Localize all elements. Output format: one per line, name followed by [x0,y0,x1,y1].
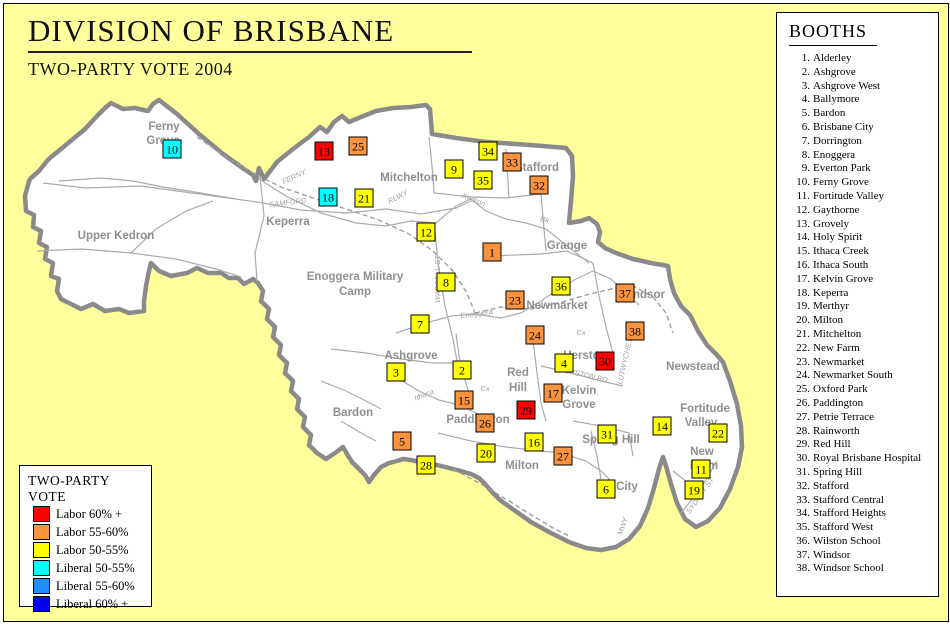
suburb-label: Grove [562,399,595,411]
legend-entry: Liberal 60% + [33,595,151,613]
suburb-label: Camp [339,286,371,298]
suburb-label: Ashgrove [384,350,437,362]
booth-number: 14. [789,231,810,245]
booth-list-item: 23.Newmarket [789,356,938,370]
booth-number: 6. [789,121,810,135]
booth-number: 28. [789,425,810,439]
legend-label: Labor 60% + [56,507,122,522]
booth-list-item: 27.Petrie Terrace [789,411,938,425]
booth-number: 3. [789,80,810,94]
page-subtitle: TWO-PARTY VOTE 2004 [28,59,472,80]
booth-name: Stafford Central [813,494,884,506]
booth-name: Red Hill [813,438,851,450]
booth-list-item: 25.Oxford Park [789,383,938,397]
booth-list-item: 31.Spring Hill [789,466,938,480]
suburb-label: Newmarket [526,300,588,312]
booth-name: Grovely [813,218,849,230]
booth-list-item: 30.Royal Brisbane Hospital [789,452,938,466]
booth-number: 35. [789,521,810,535]
booth-number: 18. [789,287,810,301]
booth-number: 27. [789,411,810,425]
booth-number: 32. [789,480,810,494]
booth-number: 29. [789,438,810,452]
booth-name: Ferny Grove [813,176,869,188]
suburb-label: Keperra [266,216,310,228]
booth-marker-number-11[interactable]: 11 [695,463,707,477]
booth-name: Newmarket South [813,369,893,381]
suburb-label: Upper Kedron [78,230,155,242]
booth-number: 24. [789,369,810,383]
booth-marker-number-28[interactable]: 28 [420,459,432,473]
booth-name: Everton Park [813,162,871,174]
booth-name: Enoggera [813,149,855,161]
booth-list-item: 15.Ithaca Creek [789,245,938,259]
booth-number: 13. [789,218,810,232]
booth-marker-number-13[interactable]: 13 [318,145,330,159]
legend-label: Liberal 55-60% [56,579,135,594]
booth-list-item: 36.Wilston School [789,535,938,549]
booth-list-item: 21.Mitchelton [789,328,938,342]
suburb-label: Fortitude [680,403,730,415]
booths-title: BOOTHS [789,21,938,42]
booth-list-item: 22.New Farm [789,342,938,356]
booth-name: Stafford West [813,521,873,533]
booth-list-item: 9.Everton Park [789,162,938,176]
booth-marker-number-19[interactable]: 19 [688,484,700,498]
booth-number: 20. [789,314,810,328]
booth-marker-number-23[interactable]: 23 [509,294,521,308]
booth-number: 23. [789,356,810,370]
booth-marker-number-30[interactable]: 30 [599,355,611,369]
legend-rows: Labor 60% +Labor 55-60%Labor 50-55%Liber… [28,505,151,613]
booth-list-item: 29.Red Hill [789,438,938,452]
legend-title: TWO-PARTY VOTE [28,473,151,505]
booth-list-item: 8.Enoggera [789,149,938,163]
booth-number: 38. [789,562,810,576]
booth-list-item: 20.Milton [789,314,938,328]
booth-list-item: 11.Fortitude Valley [789,190,938,204]
booth-marker-number-12[interactable]: 12 [420,226,432,240]
booth-marker-number-29[interactable]: 29 [520,404,532,418]
legend-entry: Liberal 50-55% [33,559,151,577]
booth-list-item: 37.Windsor [789,549,938,563]
booth-number: 30. [789,452,810,466]
booth-list-item: 5.Bardon [789,107,938,121]
title-underline [28,51,472,53]
booth-number: 37. [789,549,810,563]
booth-name: Gaythorne [813,204,859,216]
booth-name: Petrie Terrace [813,411,874,423]
booth-name: Oxford Park [813,383,868,395]
road-label: Cx [480,384,489,393]
booth-number: 8. [789,149,810,163]
booth-list-item: 3.Ashgrove West [789,80,938,94]
booths-panel: BOOTHS 1.Alderley2.Ashgrove3.Ashgrove We… [776,12,939,597]
booth-marker-number-16[interactable]: 16 [528,436,540,450]
booth-name: New Farm [813,342,860,354]
booth-marker-number-26[interactable]: 26 [479,417,491,431]
booth-name: Kelvin Grove [813,273,873,285]
page-title: DIVISION OF BRISBANE [28,14,472,48]
suburb-label: Bardon [333,407,373,419]
booth-list-item: 38.Windsor School [789,562,938,576]
booth-marker-number-15[interactable]: 15 [458,394,470,408]
booth-marker-number-20[interactable]: 20 [480,447,492,461]
booth-list-item: 19.Merthyr [789,300,938,314]
booth-number: 21. [789,328,810,342]
booth-name: Alderley [813,52,851,64]
booth-marker-number-1[interactable]: 1 [489,246,495,260]
booth-marker-number-36[interactable]: 36 [555,280,567,294]
booth-marker-number-37[interactable]: 37 [619,287,631,301]
booth-list-item: 17.Kelvin Grove [789,273,938,287]
booth-name: Ashgrove West [813,80,880,92]
booth-number: 17. [789,273,810,287]
booth-marker-number-5[interactable]: 5 [399,435,405,449]
booth-list-item: 24.Newmarket South [789,369,938,383]
legend-swatch-labor60 [33,506,50,522]
legend-panel: TWO-PARTY VOTE Labor 60% +Labor 55-60%La… [19,465,152,607]
booth-number: 2. [789,66,810,80]
booth-number: 4. [789,93,810,107]
booth-name: Ithaca South [813,259,868,271]
suburb-label: Hill [509,382,527,394]
booth-marker-number-35[interactable]: 35 [477,174,489,188]
suburb-label: Newstead [666,361,720,373]
booth-number: 10. [789,176,810,190]
booth-name: Rainworth [813,425,859,437]
booth-marker-number-25[interactable]: 25 [352,140,364,154]
legend-entry: Labor 55-60% [33,523,151,541]
booth-marker-number-9[interactable]: 9 [451,163,457,177]
legend-label: Labor 55-60% [56,525,129,540]
booth-number: 15. [789,245,810,259]
booth-number: 16. [789,259,810,273]
booth-name: Stafford [813,480,849,492]
booth-marker-number-34[interactable]: 34 [482,145,494,159]
booth-list-item: 35.Stafford West [789,521,938,535]
booth-name: Newmarket [813,356,864,368]
booth-marker-number-17[interactable]: 17 [547,387,559,401]
booth-name: Paddington [813,397,863,409]
booth-marker-number-32[interactable]: 32 [533,179,545,193]
booth-marker-number-38[interactable]: 38 [629,325,641,339]
booth-name: Dorrington [813,135,862,147]
legend-swatch-labor55 [33,524,50,540]
suburb-label: Milton [505,460,539,472]
booth-name: Royal Brisbane Hospital [813,452,921,464]
booth-number: 34. [789,507,810,521]
booth-list-item: 26.Paddington [789,397,938,411]
booths-list: 1.Alderley2.Ashgrove3.Ashgrove West4.Bal… [789,52,938,576]
booth-list-item: 18.Keperra [789,287,938,301]
booth-list-item: 10.Ferny Grove [789,176,938,190]
suburb-label: Mitchelton [380,172,438,184]
booth-name: Keperra [813,287,848,299]
booth-marker-number-4[interactable]: 4 [561,357,567,371]
suburb-label: Grange [547,240,587,252]
legend-swatch-lib50 [33,560,50,576]
suburb-label: Stafford [515,162,559,174]
booth-list-item: 13.Grovely [789,218,938,232]
booth-number: 33. [789,494,810,508]
booth-marker-number-10[interactable]: 10 [166,143,178,157]
legend-label: Labor 50-55% [56,543,129,558]
legend-entry: Labor 50-55% [33,541,151,559]
booth-marker-number-27[interactable]: 27 [557,450,569,464]
header: DIVISION OF BRISBANE TWO-PARTY VOTE 2004 [28,14,472,80]
suburb-label: Red [507,367,529,379]
legend-entry: Labor 60% + [33,505,151,523]
map-page: FernyGroveUpper KedronKeperraMitcheltonS… [3,3,949,622]
booth-list-item: 2.Ashgrove [789,66,938,80]
booth-name: Ithaca Creek [813,245,869,257]
booth-marker-number-18[interactable]: 18 [322,191,334,205]
legend-label: Liberal 50-55% [56,561,135,576]
legend-label: Liberal 60% + [56,597,128,612]
booth-list-item: 6.Brisbane City [789,121,938,135]
booth-marker-number-8[interactable]: 8 [443,276,449,290]
legend-swatch-lib60 [33,596,50,612]
booth-number: 26. [789,397,810,411]
booth-marker-number-14[interactable]: 14 [656,420,668,434]
booth-list-item: 32.Stafford [789,480,938,494]
booth-name: Brisbane City [813,121,874,133]
booth-list-item: 34.Stafford Heights [789,507,938,521]
booth-name: Holy Spirit [813,231,862,243]
booth-name: Windsor [813,549,850,561]
booth-name: Milton [813,314,843,326]
booth-name: Spring Hill [813,466,862,478]
booth-name: Ashgrove [813,66,856,78]
booth-number: 5. [789,107,810,121]
booth-number: 9. [789,162,810,176]
booth-marker-number-22[interactable]: 22 [712,427,724,441]
suburb-label: City [616,481,638,493]
booth-name: Wilston School [813,535,881,547]
booth-name: Stafford Heights [813,507,886,519]
suburb-label: New [690,446,714,458]
booth-number: 11. [789,190,810,204]
legend-swatch-labor50 [33,542,50,558]
booth-name: Windsor School [813,562,884,574]
booth-number: 19. [789,300,810,314]
booth-number: 22. [789,342,810,356]
booth-name: Mitchelton [813,328,861,340]
booth-number: 25. [789,383,810,397]
booth-marker-number-7[interactable]: 7 [417,318,423,332]
booth-marker-number-21[interactable]: 21 [358,192,370,206]
road-label: Cx [576,328,585,337]
booth-name: Bardon [813,107,845,119]
booth-name: Ballymore [813,93,859,105]
booth-number: 12. [789,204,810,218]
booths-title-underline [789,45,877,46]
booth-list-item: 14.Holy Spirit [789,231,938,245]
booth-list-item: 12.Gaythorne [789,204,938,218]
booth-marker-number-24[interactable]: 24 [529,329,541,343]
booth-number: 7. [789,135,810,149]
suburb-label: Ferny [148,121,180,133]
booth-marker-number-6[interactable]: 6 [603,483,609,497]
legend-entry: Liberal 55-60% [33,577,151,595]
booth-name: Fortitude Valley [813,190,884,202]
booth-name: Merthyr [813,300,849,312]
booth-list-item: 7.Dorrington [789,135,938,149]
booth-list-item: 4.Ballymore [789,93,938,107]
booth-list-item: 16.Ithaca South [789,259,938,273]
legend-swatch-lib55 [33,578,50,594]
booth-list-item: 28.Rainworth [789,425,938,439]
booth-marker-number-2[interactable]: 2 [459,364,465,378]
booth-number: 36. [789,535,810,549]
booth-marker-number-33[interactable]: 33 [506,156,518,170]
booth-marker-number-3[interactable]: 3 [393,366,399,380]
booth-marker-number-31[interactable]: 31 [601,428,613,442]
suburb-label: Kelvin [562,385,597,397]
suburb-label: Enoggera Military [307,271,404,283]
booth-list-item: 33.Stafford Central [789,494,938,508]
booth-list-item: 1.Alderley [789,52,938,66]
booth-number: 31. [789,466,810,480]
booth-number: 1. [789,52,810,66]
